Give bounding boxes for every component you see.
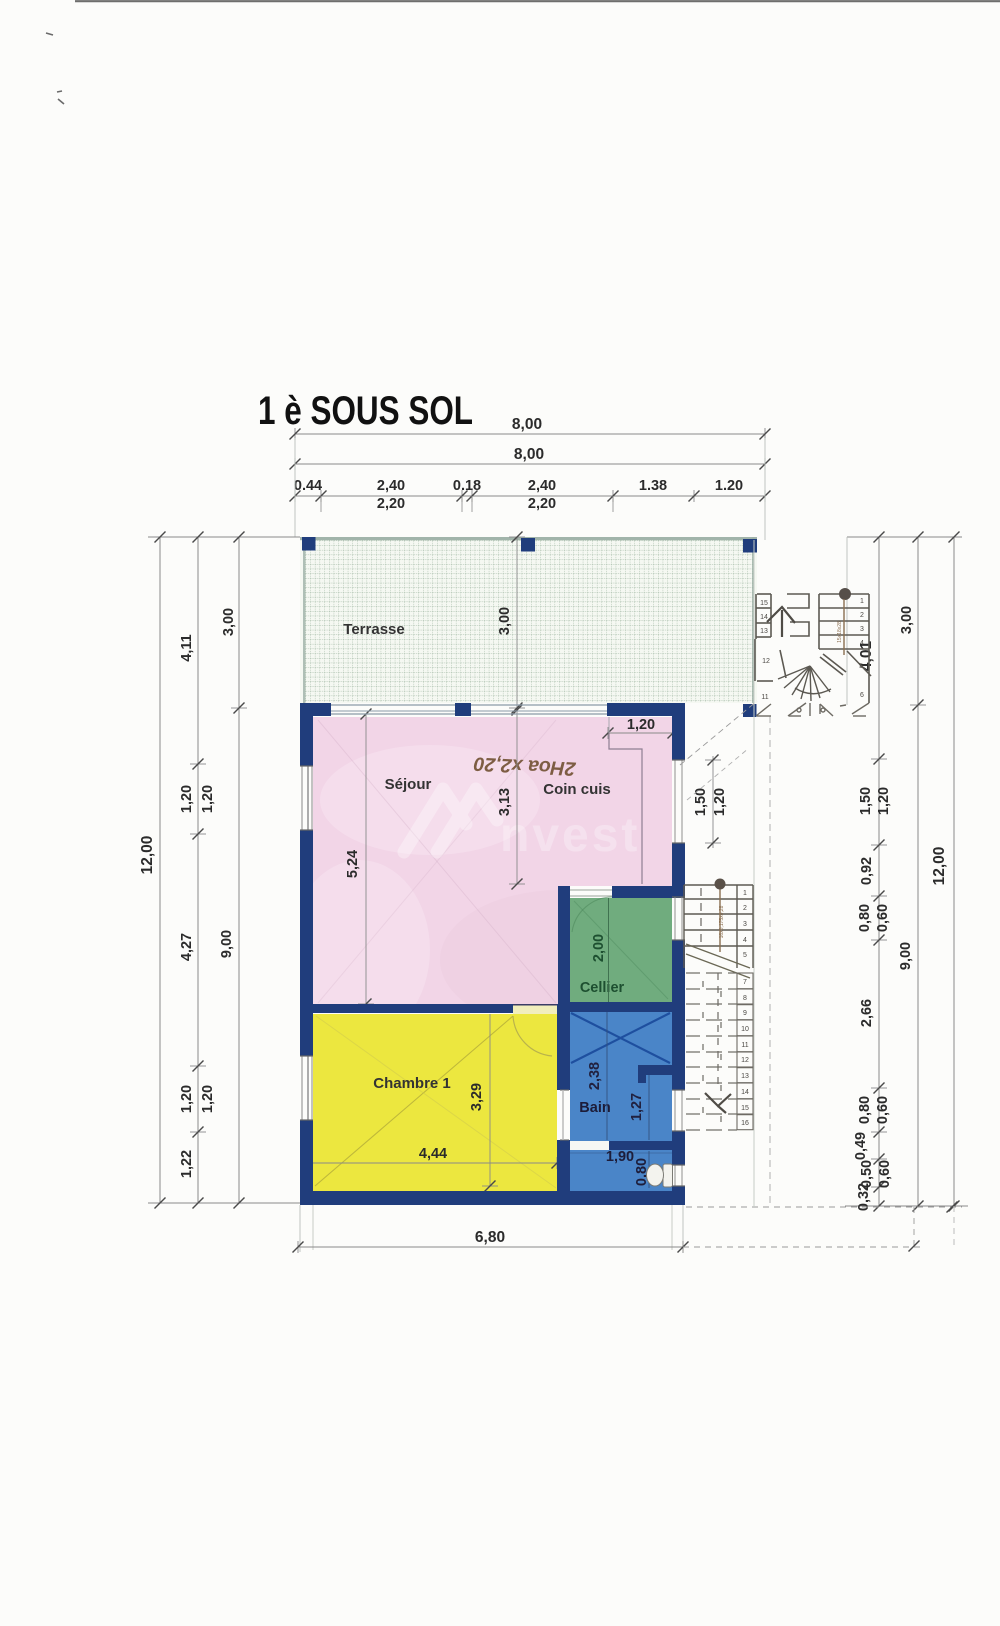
svg-text:Séjour: Séjour: [385, 776, 432, 793]
svg-text:Terrasse: Terrasse: [343, 621, 404, 638]
svg-text:1,20: 1,20: [627, 717, 655, 733]
svg-text:16x0,175x0,28: 16x0,175x0,28: [719, 905, 725, 938]
svg-text:15: 15: [741, 1105, 749, 1112]
svg-text:0,80: 0,80: [857, 904, 873, 932]
svg-text:1,50: 1,50: [693, 788, 709, 816]
svg-text:2,40: 2,40: [528, 478, 556, 494]
svg-text:1,20: 1,20: [200, 1085, 216, 1113]
svg-text:3: 3: [743, 921, 747, 928]
svg-text:1,27: 1,27: [629, 1093, 645, 1121]
svg-text:12: 12: [741, 1057, 749, 1064]
svg-text:3,29: 3,29: [469, 1083, 485, 1111]
svg-text:1.20: 1.20: [715, 478, 743, 494]
svg-text:16: 16: [741, 1120, 749, 1127]
svg-text:6,80: 6,80: [475, 1229, 505, 1246]
svg-text:0.18: 0.18: [453, 478, 481, 494]
svg-text:10: 10: [741, 1026, 749, 1033]
svg-text:5: 5: [859, 663, 863, 670]
svg-text:1: 1: [743, 890, 747, 897]
svg-text:14: 14: [741, 1089, 749, 1096]
svg-text:2,00: 2,00: [591, 934, 607, 962]
svg-text:1,50: 1,50: [858, 787, 874, 815]
svg-text:0,49: 0,49: [853, 1132, 869, 1160]
svg-text:15x18x28: 15x18x28: [837, 621, 843, 643]
svg-text:11: 11: [761, 694, 768, 701]
svg-text:8: 8: [743, 995, 747, 1002]
svg-text:13: 13: [760, 628, 768, 635]
svg-text:1 è SOUS SOL: 1 è SOUS SOL: [258, 389, 473, 433]
svg-text:2,40: 2,40: [377, 478, 405, 494]
svg-text:0.44: 0.44: [294, 478, 322, 494]
svg-text:2: 2: [860, 612, 864, 619]
svg-text:Coin cuis: Coin cuis: [543, 781, 611, 798]
svg-text:7: 7: [743, 979, 747, 986]
svg-text:9,00: 9,00: [219, 930, 235, 958]
svg-text:12,00: 12,00: [139, 836, 156, 875]
svg-text:13: 13: [741, 1073, 749, 1080]
svg-text:Bain: Bain: [579, 1100, 610, 1116]
svg-text:1,22: 1,22: [179, 1150, 195, 1178]
svg-text:3: 3: [860, 626, 864, 633]
svg-text:0,60: 0,60: [877, 1160, 893, 1188]
svg-text:1,90: 1,90: [606, 1149, 634, 1165]
svg-text:1,20: 1,20: [712, 788, 728, 816]
svg-text:4,44: 4,44: [419, 1146, 447, 1162]
svg-text:2,20: 2,20: [377, 496, 405, 512]
svg-text:9,00: 9,00: [898, 942, 914, 970]
svg-text:1.38: 1.38: [639, 478, 667, 494]
svg-text:9: 9: [743, 1010, 747, 1017]
svg-text:6: 6: [860, 692, 864, 699]
svg-text:2,66: 2,66: [859, 999, 875, 1027]
svg-text:Chambre 1: Chambre 1: [373, 1075, 451, 1092]
svg-text:3,00: 3,00: [221, 608, 237, 636]
svg-text:2,20: 2,20: [528, 496, 556, 512]
svg-text:1,20: 1,20: [179, 785, 195, 813]
svg-text:nvest: nvest: [500, 809, 640, 862]
svg-text:2: 2: [743, 905, 747, 912]
svg-text:2,38: 2,38: [587, 1062, 603, 1090]
svg-text:1,20: 1,20: [200, 785, 216, 813]
svg-text:1,20: 1,20: [876, 787, 892, 815]
svg-text:3,13: 3,13: [497, 788, 513, 816]
svg-text:Cellier: Cellier: [580, 980, 625, 996]
svg-text:14: 14: [760, 614, 768, 621]
svg-text:4,11: 4,11: [179, 634, 195, 661]
svg-text:8,00: 8,00: [512, 416, 542, 433]
svg-text:4: 4: [743, 937, 747, 944]
svg-text:5: 5: [743, 952, 747, 959]
svg-text:4: 4: [860, 640, 864, 647]
svg-text:0,92: 0,92: [859, 857, 875, 885]
svg-text:8,00: 8,00: [514, 446, 544, 463]
svg-text:3,00: 3,00: [497, 607, 513, 635]
svg-text:0,60: 0,60: [875, 904, 891, 932]
svg-text:0,80: 0,80: [857, 1096, 873, 1124]
svg-text:3,00: 3,00: [899, 606, 915, 634]
svg-text:11: 11: [741, 1042, 748, 1049]
svg-text:12,00: 12,00: [931, 847, 948, 886]
svg-text:4,27: 4,27: [179, 933, 195, 961]
svg-text:12: 12: [762, 658, 770, 665]
svg-text:15: 15: [760, 600, 768, 607]
svg-text:1: 1: [860, 598, 864, 605]
svg-text:0,60: 0,60: [875, 1096, 891, 1124]
svg-text:5,24: 5,24: [345, 850, 361, 878]
svg-text:1,20: 1,20: [179, 1085, 195, 1113]
